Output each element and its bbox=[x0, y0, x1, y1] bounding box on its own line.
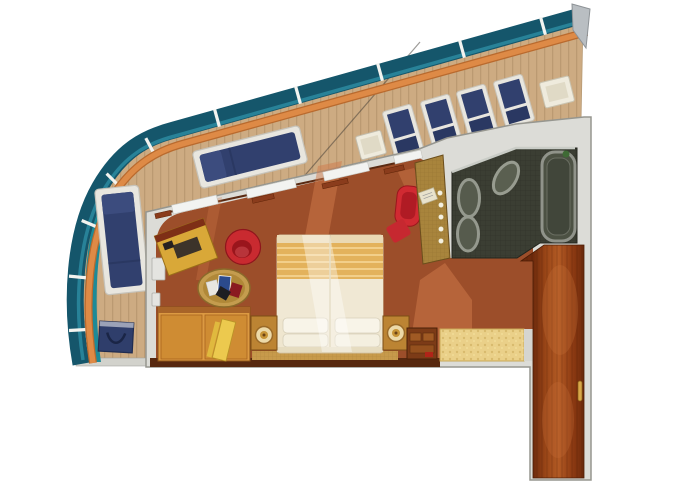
nightstand-right bbox=[383, 316, 409, 350]
coffee-table bbox=[198, 269, 250, 307]
vanity-light bbox=[438, 214, 443, 219]
wall-notch bbox=[152, 293, 160, 306]
entry-wall-sliver bbox=[524, 329, 533, 361]
floor-plan-page bbox=[0, 0, 680, 486]
double-bed bbox=[277, 235, 383, 353]
wardrobe bbox=[158, 307, 250, 361]
entry-floor-texture bbox=[440, 329, 524, 361]
floor-plan-canvas bbox=[0, 0, 680, 486]
beach-bag bbox=[98, 321, 134, 353]
whirlpool-tub bbox=[542, 152, 575, 241]
door-handle bbox=[578, 381, 582, 401]
nightstand-left bbox=[251, 316, 277, 350]
bathroom bbox=[452, 148, 577, 258]
vanity-light bbox=[438, 238, 443, 243]
vanity-light bbox=[437, 190, 442, 195]
vanity-light bbox=[438, 202, 443, 207]
plant bbox=[563, 151, 570, 158]
oval-basin bbox=[458, 217, 479, 251]
media-cabinet bbox=[407, 328, 437, 359]
vanity-light bbox=[438, 226, 443, 231]
wood-sheen bbox=[542, 382, 574, 458]
tub-chair bbox=[226, 230, 261, 265]
railing-post bbox=[69, 276, 87, 278]
railing-post bbox=[69, 330, 87, 331]
cabinet-item bbox=[425, 352, 433, 357]
oval-basin bbox=[459, 180, 480, 217]
wood-sheen bbox=[542, 265, 578, 355]
